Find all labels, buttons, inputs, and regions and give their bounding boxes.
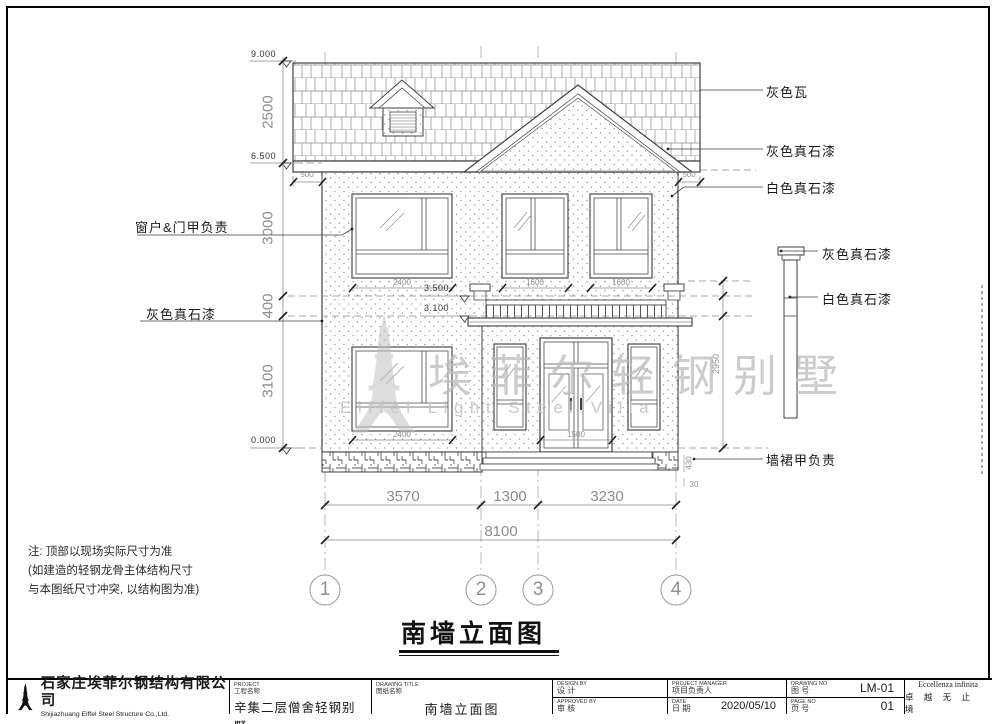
dim-30: 30 bbox=[690, 480, 699, 489]
drawing-no-label-cn: 图 号 bbox=[791, 687, 827, 695]
drawing-no-value: LM-01 bbox=[860, 681, 894, 695]
drawing-title-value: 南墙立面图 bbox=[376, 699, 548, 718]
company-name-cn: 石家庄埃菲尔钢结构有限公司 bbox=[41, 676, 229, 710]
elevation-3100: 3.100 bbox=[424, 303, 449, 313]
dim-400: 400 bbox=[260, 293, 277, 318]
dim-2500: 2500 bbox=[260, 95, 277, 128]
project-manager-row: PROJECT MANAGER 项目负责人 bbox=[668, 680, 786, 698]
watermark-text-cn: 埃菲尔轻钢别墅 bbox=[428, 340, 855, 404]
dim-win2f-left: 2400 bbox=[393, 278, 411, 287]
note-line-3: 与本图纸尺寸冲突, 以结构图为准) bbox=[28, 581, 199, 600]
elevation-3500: 3.500 bbox=[424, 283, 449, 293]
label-gable-paint: 灰色真石漆 bbox=[766, 141, 836, 160]
dim-win2f-right: 1600 bbox=[612, 278, 630, 287]
general-notes: 注: 顶部以现场实际尺寸为准 (如建造的轻钢龙骨主体结构尺寸 与本图纸尺寸冲突,… bbox=[28, 543, 199, 600]
approved-by-label-cn: 审 核 bbox=[557, 705, 596, 713]
motto-en: Eccellenza infinita bbox=[918, 680, 978, 689]
company-cell: 石家庄埃菲尔钢结构有限公司 Shijiazhuang Eiffel Steel … bbox=[8, 680, 230, 714]
pm-label-cn: 项目负责人 bbox=[672, 687, 727, 695]
dim-3230: 3230 bbox=[590, 488, 623, 505]
dim-2950: 2950 bbox=[711, 354, 721, 374]
grid-bubble-3: 3 bbox=[533, 579, 544, 601]
elevation-6500: 6.500 bbox=[251, 151, 276, 161]
label-plinth-owner: 墙裙甲负责 bbox=[766, 450, 836, 469]
label-roof-tile: 灰色瓦 bbox=[766, 82, 808, 101]
dim-win1f-left: 2400 bbox=[393, 430, 411, 439]
note-line-2: (如建造的轻钢龙骨主体结构尺寸 bbox=[28, 562, 199, 581]
dim-3100: 3100 bbox=[260, 364, 277, 397]
date-row: DATE 日 期 2020/05/10 bbox=[668, 698, 786, 715]
label-band-paint: 灰色真石漆 bbox=[146, 304, 216, 323]
design-approved-cell: DESIGN BY 设 计 APPROVED BY 审 核 bbox=[553, 680, 668, 714]
project-cell: PROJECT 工程名称 辛集二层僧舍轻钢别墅 bbox=[230, 680, 372, 714]
project-name: 辛集二层僧舍轻钢别墅 bbox=[234, 697, 367, 724]
elevation-0000: 0.000 bbox=[251, 435, 276, 445]
dim-8100: 8100 bbox=[484, 523, 517, 540]
page-no-row: PAGE NO 页 号 01 bbox=[787, 698, 904, 715]
grid-bubble-4: 4 bbox=[671, 579, 682, 601]
grid-bubbles bbox=[310, 575, 691, 605]
label-eave-paint: 白色真石漆 bbox=[766, 178, 836, 197]
number-cell: DRAWING NO 图 号 LM-01 PAGE NO 页 号 01 bbox=[787, 680, 905, 714]
note-line-1: 注: 顶部以现场实际尺寸为准 bbox=[28, 543, 199, 562]
dim-overhang-left: 500 bbox=[300, 170, 313, 179]
dim-door: 1500 bbox=[567, 430, 585, 439]
motto-cell: Eccellenza infinita 卓 越 无 止 境 bbox=[905, 680, 991, 714]
label-downspout-cap-paint: 灰色真石漆 bbox=[822, 244, 892, 263]
title-underline bbox=[399, 650, 559, 656]
dim-3570: 3570 bbox=[386, 488, 419, 505]
page-no-label-cn: 页 号 bbox=[791, 705, 816, 713]
drawing-sheet: 埃菲尔轻钢别墅 Eiffel Light Steel Villa 灰色瓦 灰色真… bbox=[0, 0, 1000, 724]
label-windows-doors-owner: 窗户&门甲负责 bbox=[135, 217, 229, 236]
drawing-main-title: 南墙立面图 bbox=[401, 614, 546, 650]
grid-bubble-2: 2 bbox=[476, 579, 487, 601]
company-logo-eiffel-icon bbox=[16, 683, 35, 711]
dim-3000: 3000 bbox=[260, 211, 277, 244]
plinth-and-steps bbox=[322, 452, 678, 472]
watermark-text-en: Eiffel Light Steel Villa bbox=[340, 398, 655, 418]
drawing-no-row: DRAWING NO 图 号 LM-01 bbox=[787, 680, 904, 698]
drawing-title-label-cn: 图纸名称 bbox=[376, 688, 548, 696]
page-no-value: 01 bbox=[881, 699, 894, 713]
design-by-label-cn: 设 计 bbox=[557, 687, 587, 695]
company-name-en: Shijiazhuang Eiffel Steel Structure Co.,… bbox=[41, 710, 229, 719]
label-downspout-paint: 白色真石漆 bbox=[822, 289, 892, 308]
approved-by-row: APPROVED BY 审 核 bbox=[553, 698, 667, 715]
eiffel-tower-watermark bbox=[348, 312, 420, 438]
elevation-9000: 9.000 bbox=[251, 49, 276, 59]
pm-date-cell: PROJECT MANAGER 项目负责人 DATE 日 期 2020/05/1… bbox=[668, 680, 787, 714]
project-label-cn: 工程名称 bbox=[234, 688, 367, 696]
title-block: 石家庄埃菲尔钢结构有限公司 Shijiazhuang Eiffel Steel … bbox=[8, 678, 992, 714]
motto-cn: 卓 越 无 止 境 bbox=[905, 691, 991, 715]
date-label-cn: 日 期 bbox=[672, 705, 690, 713]
dim-overhang-right: 500 bbox=[682, 170, 695, 179]
dim-430: 430 bbox=[685, 456, 694, 469]
grid-bubble-1: 1 bbox=[320, 579, 331, 601]
dim-win2f-mid: 1600 bbox=[526, 278, 544, 287]
dim-1300: 1300 bbox=[493, 488, 526, 505]
drawing-title-cell: DRAWING TITLE 图纸名称 南墙立面图 bbox=[372, 680, 553, 714]
date-value: 2020/05/10 bbox=[721, 700, 776, 712]
plot-stamp-vertical-text bbox=[981, 285, 983, 475]
second-floor-windows bbox=[352, 194, 652, 278]
design-by-row: DESIGN BY 设 计 bbox=[553, 680, 667, 698]
